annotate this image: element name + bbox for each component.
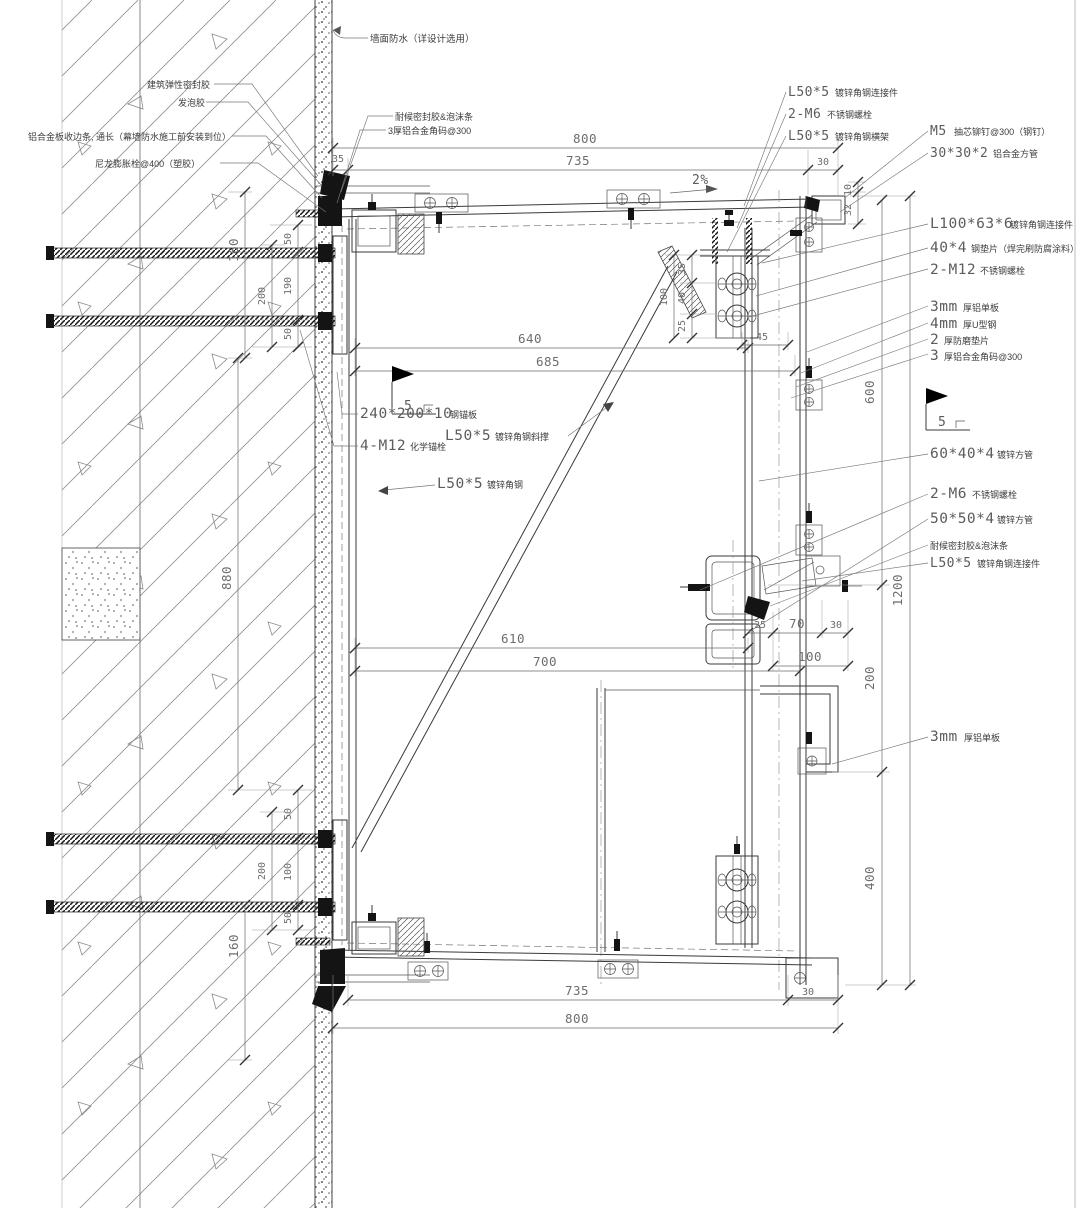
callout-anchor-plate-desc: 钢锚板	[450, 409, 477, 420]
callout-sq30-code: 30*30*2	[930, 146, 988, 161]
center-hanger	[597, 680, 760, 985]
weld-flag	[926, 388, 970, 430]
dim-50-b: 50	[283, 328, 294, 340]
callout-pad2-code: 2	[930, 332, 939, 348]
callout-sealant-top: 耐候密封胶&泡沫条	[395, 111, 473, 122]
callout-angle-desc: 镀锌角钢	[487, 479, 523, 490]
callout-l100-code: L100*63*6	[930, 216, 1013, 232]
dim-top-800: 800	[573, 131, 597, 146]
callout-u4-desc: 厚U型钢	[963, 319, 997, 330]
dim-32: 32	[843, 204, 854, 216]
callout-sq50-desc: 镀锌方管	[997, 514, 1033, 525]
dim-610: 610	[501, 631, 525, 646]
flanged-bolt	[718, 869, 756, 891]
callout-m6-mid-desc: 不锈钢螺栓	[972, 489, 1017, 500]
callout-alum3a-code: 3mm	[930, 299, 958, 315]
dim-880: 880	[219, 566, 234, 590]
square-tube-30x30	[804, 196, 845, 224]
dim-top-30: 30	[817, 157, 829, 168]
callout-m5-rivet-code: M5	[930, 124, 947, 139]
dim-400: 400	[862, 866, 877, 890]
callout-wall-waterproofing: 墙面防水（详设计选用）	[370, 33, 475, 45]
callout-nylon-anchor: 尼龙膨胀栓@400（塑胶）	[95, 158, 200, 169]
callout-alum3b-code: 3mm	[930, 729, 958, 745]
callout-chem-anchor-code: 4-M12	[360, 438, 406, 454]
connection-brackets	[312, 170, 862, 1012]
callout-shim40-desc: 钢垫片（焊完刷防腐涂料）	[971, 243, 1079, 254]
dim-25: 25	[754, 620, 766, 631]
callout-sq60-code: 60*40*4	[930, 446, 995, 462]
cad-detail-drawing: 2% 5 5 墙面防水（详设计选用） 建筑弹性密封胶 发泡胶 铝合金板收边条, …	[0, 0, 1080, 1208]
callout-l100-desc: 镀锌角钢连接件	[1010, 219, 1073, 230]
callout-l50-connector-mid-desc: 镀锌角钢连接件	[977, 558, 1040, 569]
dim-70: 70	[789, 616, 805, 631]
callout-sq50-code: 50*50*4	[930, 511, 995, 527]
weld-size-label: 5	[938, 415, 946, 430]
dim-bracket-35: 35	[677, 263, 688, 275]
drawing-canvas: 2% 5 5 墙面防水（详设计选用） 建筑弹性密封胶 发泡胶 铝合金板收边条, …	[0, 0, 1080, 1208]
dim-bracket-40: 40	[677, 292, 688, 304]
callout-sq60-desc: 镀锌方管	[997, 449, 1033, 460]
slope-label: 2%	[692, 173, 709, 188]
dim-640: 640	[518, 331, 542, 346]
dim-685: 685	[536, 354, 560, 369]
callout-elastic-sealant: 建筑弹性密封胶	[147, 79, 210, 90]
dim-160-top: 160	[226, 238, 241, 262]
dim-100-left: 100	[283, 863, 294, 881]
dim-10: 10	[843, 184, 854, 196]
flanged-bolt	[718, 305, 756, 327]
callout-m12-desc: 不锈钢螺栓	[980, 265, 1025, 276]
callout-edge-strip: 铝合金板收边条, 通长（幕墙防水施工前安装到位）	[28, 131, 231, 142]
dim-1200: 1200	[890, 574, 905, 606]
panel-return-flashing	[760, 686, 838, 774]
callout-m6-top-code: 2-M6	[788, 107, 821, 122]
callout-m6-mid-code: 2-M6	[930, 486, 967, 502]
callout-shim40-code: 40*4	[930, 240, 967, 256]
dim-bracket-25: 25	[677, 320, 688, 332]
callout-m6-top-desc: 不锈钢螺栓	[827, 109, 872, 120]
dim-200-top-left: 200	[257, 287, 268, 305]
callout-l50-connector-top-desc: 镀锌角钢连接件	[835, 87, 898, 98]
callout-l50-beam-desc: 镀锌角钢横架	[835, 131, 889, 142]
callout-l50-beam-code: L50*5	[788, 129, 830, 144]
dim-bottom-735: 735	[565, 983, 589, 998]
callout-m12-code: 2-M12	[930, 262, 976, 278]
callout-anchor-plate-code: 240*200*10	[360, 406, 452, 422]
callout-sq30-desc: 铝合金方管	[993, 148, 1038, 159]
dim-top-35: 35	[332, 154, 344, 165]
dim-200-right: 200	[862, 666, 877, 690]
dim-bottom-30: 30	[802, 987, 814, 998]
dim-30-mid: 30	[830, 620, 842, 631]
callout-l50-connector-mid-code: L50*5	[930, 556, 972, 571]
dim-bottom-800: 800	[565, 1011, 589, 1026]
floor-slab-section	[62, 548, 140, 640]
callout-corner-code-right-code: 3	[930, 348, 939, 364]
callout-m5-rivet-desc: 抽芯铆钉@300（钢钉）	[954, 126, 1050, 137]
flanged-bolt	[718, 901, 756, 923]
callout-brace-desc: 镀锌角钢斜撑	[495, 431, 549, 442]
callout-sealant-mid: 耐候密封胶&泡沫条	[930, 540, 1008, 551]
dim-190: 190	[283, 277, 294, 295]
dim-top-735: 735	[566, 153, 590, 168]
callout-pad2-desc: 厚防磨垫片	[944, 335, 989, 346]
flanged-bolt	[718, 273, 756, 295]
right-inner-column	[745, 228, 752, 948]
dim-50-a: 50	[283, 233, 294, 245]
dim-50-d: 50	[283, 912, 294, 924]
concrete-wall-section	[62, 0, 332, 1208]
dim-100-mid: 100	[798, 649, 822, 664]
callout-l50-connector-top-code: L50*5	[788, 85, 830, 100]
callout-chem-anchor-desc: 化学锚栓	[410, 441, 446, 452]
dim-50-c: 50	[283, 808, 294, 820]
callout-foam: 发泡胶	[178, 97, 205, 108]
dim-200-bottom-left: 200	[257, 862, 268, 880]
dim-160-bottom: 160	[226, 934, 241, 958]
dim-700: 700	[533, 654, 557, 669]
callout-brace-code: L50*5	[445, 428, 491, 444]
dim-bracket-100: 100	[659, 288, 670, 306]
weld-flags	[392, 366, 970, 430]
callout-corner-code-right-desc: 厚铝合金角码@300	[944, 351, 1022, 362]
dim-600: 600	[862, 380, 877, 404]
callout-angle-code: L50*5	[437, 476, 483, 492]
callout-u4-code: 4mm	[930, 316, 958, 332]
callout-corner-code-top: 3厚铝合金角码@300	[388, 125, 471, 136]
callout-alum3a-desc: 厚铝单板	[963, 302, 999, 313]
callout-alum3b-desc: 厚铝单板	[964, 732, 1000, 743]
top-right-bracket-L100	[700, 210, 770, 338]
dim-45: 45	[756, 332, 768, 343]
